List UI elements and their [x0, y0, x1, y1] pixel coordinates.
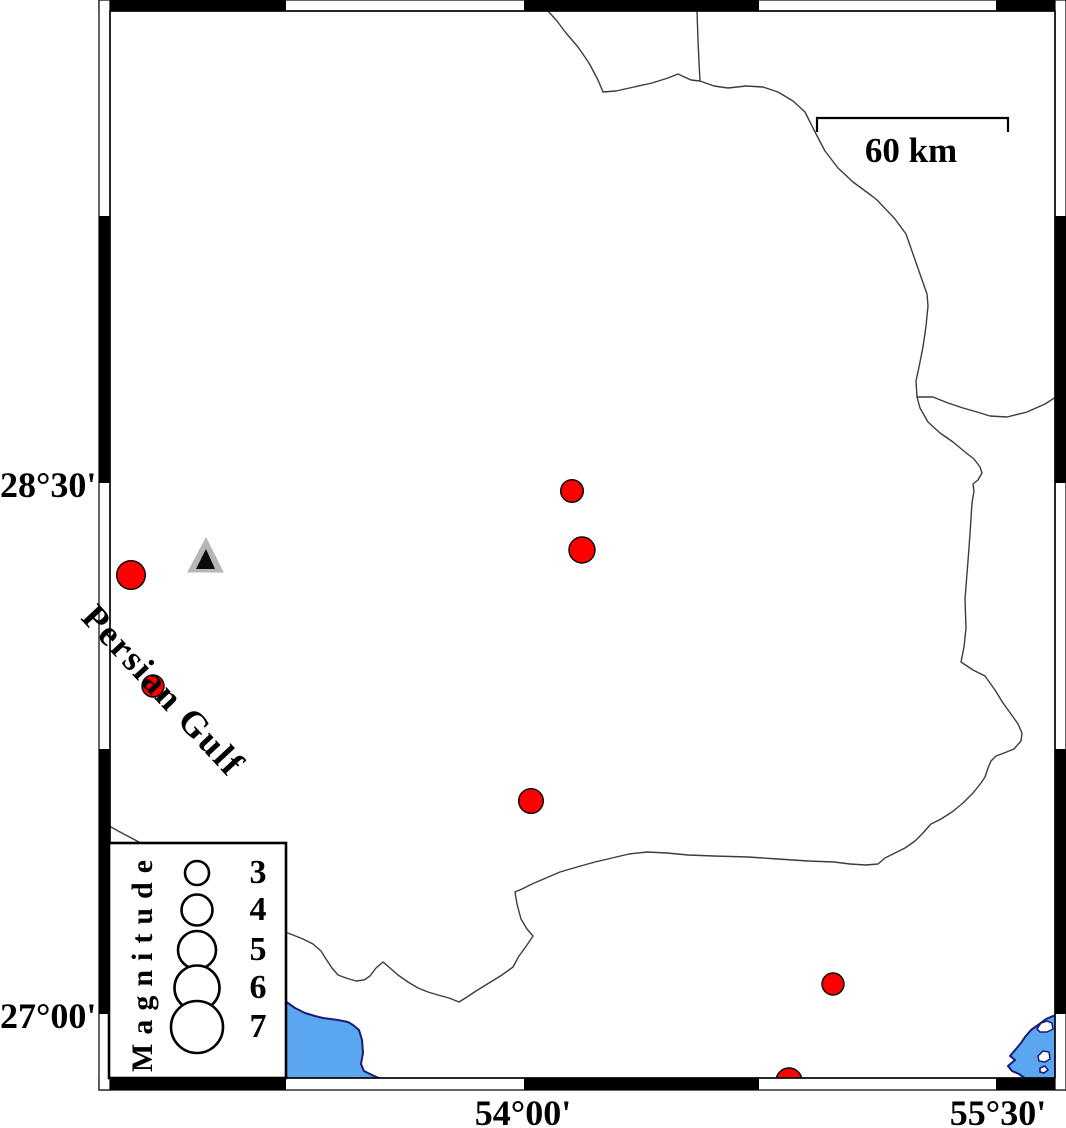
- legend-label-mag-4: 4: [236, 890, 280, 930]
- legend-label-mag-6: 6: [236, 968, 280, 1008]
- frame-segment: [996, 1078, 1055, 1090]
- scale-bar-label: 60 km: [831, 133, 991, 169]
- frame-segment: [110, 1078, 286, 1090]
- legend-circle: [171, 1001, 223, 1053]
- seismicity-map-figure: 28°30' 27°00' 54°00' 55°30' 60 km Persia…: [0, 0, 1066, 1128]
- earthquake-marker: [117, 561, 146, 590]
- legend-label-mag-7: 7: [236, 1007, 280, 1047]
- legend-title-magnitude: Magnitude: [122, 845, 164, 1077]
- frame-segment: [996, 0, 1055, 11]
- frame-segment: [1055, 749, 1066, 1014]
- lon-label-55-30: 55°30': [918, 1096, 1066, 1128]
- earthquake-marker: [569, 537, 595, 563]
- frame-segment: [524, 0, 759, 11]
- earthquake-marker: [519, 789, 544, 814]
- frame-segment: [110, 0, 286, 11]
- frame-segment: [1055, 216, 1066, 483]
- earthquake-marker: [822, 973, 844, 995]
- frame-segment: [524, 1078, 759, 1090]
- legend-circle: [178, 931, 216, 969]
- lat-label-27-00: 27°00': [0, 994, 88, 1038]
- legend-label-mag-5: 5: [236, 930, 280, 970]
- earthquake-marker: [561, 480, 584, 503]
- legend-label-mag-3: 3: [236, 853, 280, 893]
- frame-segment: [99, 216, 110, 483]
- lat-label-28-30: 28°30': [0, 463, 88, 507]
- legend-circle: [185, 861, 209, 885]
- lon-label-54-00: 54°00': [443, 1096, 603, 1128]
- legend-circle: [182, 895, 213, 926]
